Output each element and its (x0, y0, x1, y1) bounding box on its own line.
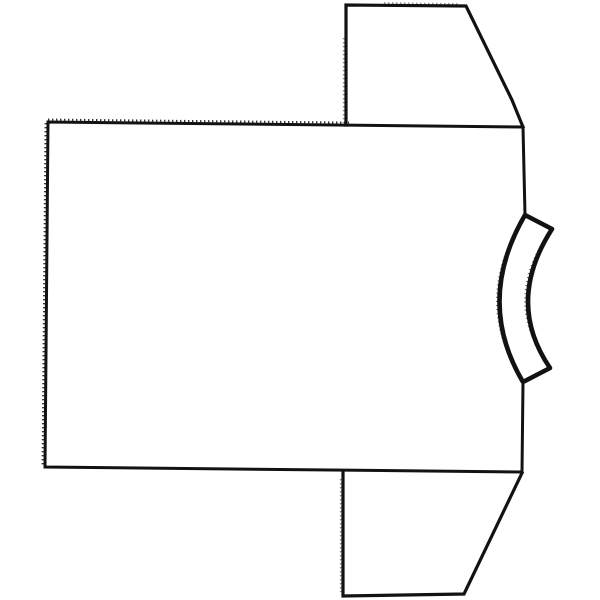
neckband-outline (499, 215, 552, 382)
shirt-body-outline (45, 122, 525, 472)
tshirt-line-drawing (0, 0, 600, 600)
drawing-page (0, 0, 600, 600)
top-sleeve-outline (346, 5, 523, 127)
bottom-sleeve-outline (343, 473, 522, 596)
